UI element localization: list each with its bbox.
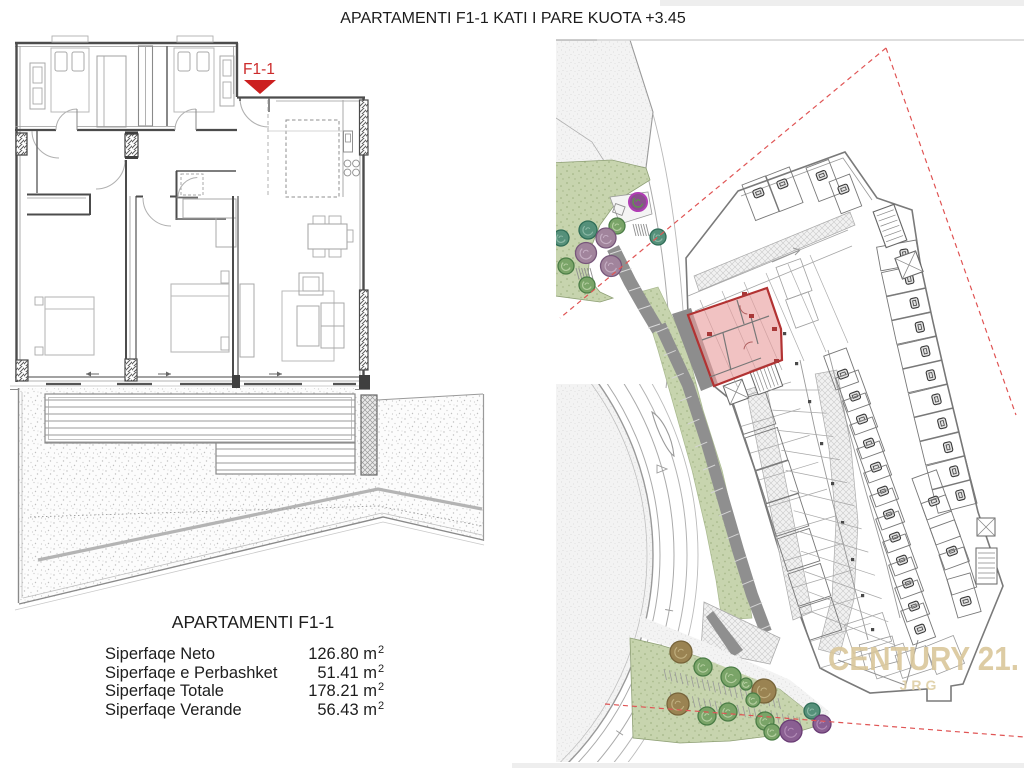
svg-text:126.80 m: 126.80 m [308, 645, 377, 663]
svg-text:JRG: JRG [900, 677, 941, 693]
svg-text:Siperfaqe Neto: Siperfaqe Neto [105, 645, 215, 663]
svg-text:CENTURY 21.: CENTURY 21. [828, 640, 1019, 677]
svg-text:2: 2 [378, 663, 384, 675]
svg-text:51.41 m: 51.41 m [317, 664, 377, 682]
svg-text:178.21 m: 178.21 m [308, 682, 377, 700]
svg-text:2: 2 [378, 700, 384, 712]
svg-text:Siperfaqe Totale: Siperfaqe Totale [105, 682, 224, 700]
svg-text:56.43 m: 56.43 m [317, 701, 377, 719]
svg-text:F1-1: F1-1 [243, 61, 275, 78]
svg-text:Siperfaqe e Perbashket: Siperfaqe e Perbashket [105, 664, 278, 682]
svg-text:Siperfaqe Verande: Siperfaqe Verande [105, 701, 242, 719]
svg-text:APARTAMENTI F1-1: APARTAMENTI F1-1 [172, 612, 334, 632]
svg-text:2: 2 [378, 644, 384, 656]
svg-text:2: 2 [378, 681, 384, 693]
